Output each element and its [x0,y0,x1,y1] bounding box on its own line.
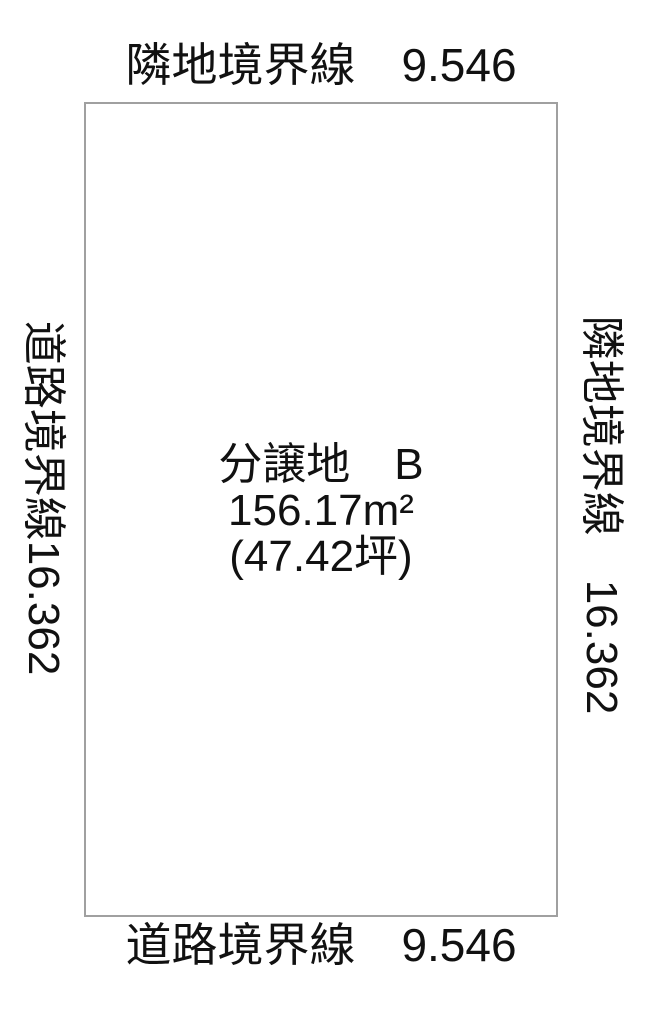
boundary-label-top: 隣地境界線 9.546 [84,40,558,91]
boundary-label-bottom: 道路境界線 9.546 [84,920,558,971]
boundary-label-right: 隣地境界線 16.362 [577,316,625,715]
land-plot-diagram: 隣地境界線 9.546 道路境界線16.362 隣地境界線 16.362 道路境… [0,0,648,1024]
plot-area-sqm: 156.17m² [84,488,558,534]
plot-title: 分譲地 B [84,442,558,488]
plot-area-tsubo: (47.42坪) [84,534,558,580]
plot-info-block: 分譲地 B 156.17m² (47.42坪) [84,442,558,580]
boundary-label-left: 道路境界線16.362 [19,321,67,676]
